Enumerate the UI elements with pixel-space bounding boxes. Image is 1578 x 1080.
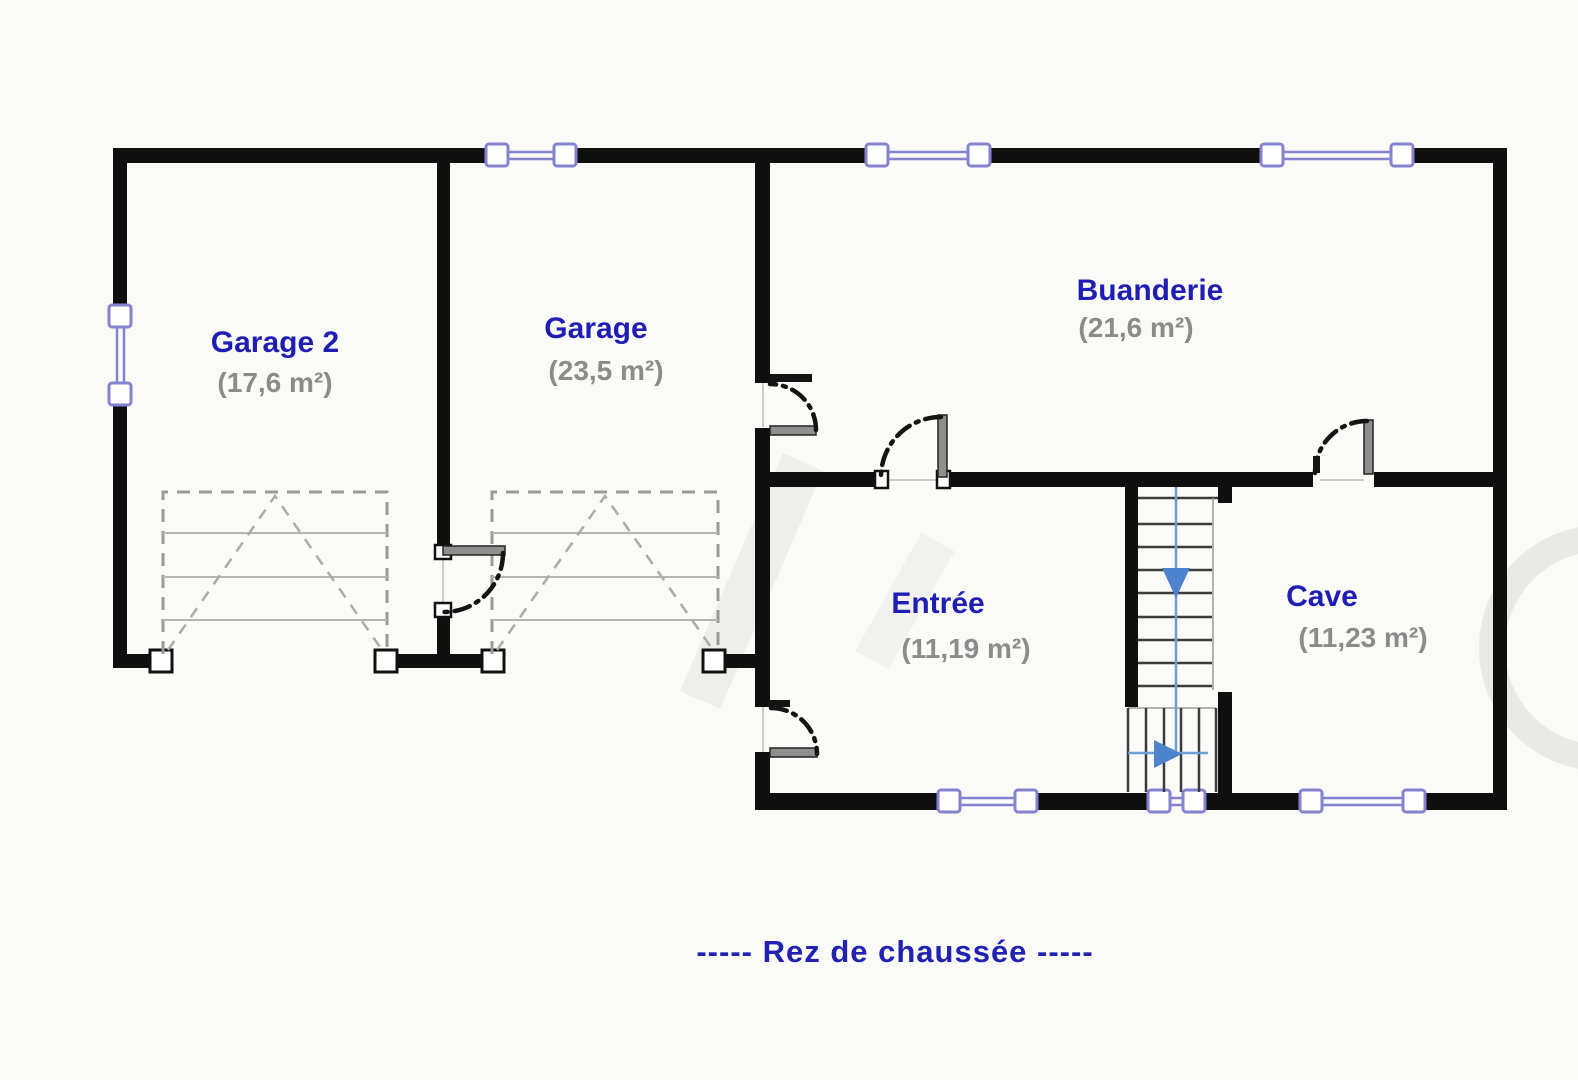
staircase: [1128, 487, 1218, 792]
room-area-buanderie: (21,6 m²): [1078, 312, 1193, 343]
room-label-buanderie: Buanderie: [1077, 274, 1224, 307]
stairs-right-arrow-icon: [1154, 740, 1182, 768]
garage-door-symbol-garage2: [163, 492, 387, 654]
room-area-garage: (23,5 m²): [548, 355, 663, 386]
window-buanderie-top-right: [1261, 144, 1413, 166]
floor-plan-canvas: Garage 2 (17,6 m²) Garage (23,5 m²) Buan…: [0, 0, 1578, 1080]
room-labels: Garage 2 (17,6 m²) Garage (23,5 m²) Buan…: [211, 274, 1428, 664]
window-entree-bottom: [938, 790, 1037, 812]
window-garage2-left: [109, 305, 131, 405]
room-area-garage-2: (17,6 m²): [217, 367, 332, 398]
room-label-entree: Entrée: [891, 587, 984, 620]
garage-door-symbol-garage: [492, 492, 718, 654]
room-label-garage: Garage: [544, 312, 647, 345]
watermark: [700, 462, 1578, 758]
window-cave-bottom: [1300, 790, 1425, 812]
door-buanderie-cave: [1313, 420, 1373, 480]
window-buanderie-top-left: [866, 144, 990, 166]
door-entrance-main: [763, 700, 817, 757]
room-area-entree: (11,19 m²): [901, 633, 1030, 664]
room-label-garage-2: Garage 2: [211, 326, 339, 359]
room-area-cave: (11,23 m²): [1298, 622, 1427, 653]
window-stairs-bottom: [1148, 790, 1205, 812]
door-garage-buanderie: [763, 374, 816, 435]
floor-plan-svg: Garage 2 (17,6 m²) Garage (23,5 m²) Buan…: [0, 0, 1578, 1080]
interior-walls: [437, 163, 1493, 810]
door-garage2-garage: [435, 545, 505, 617]
floor-title: ----- Rez de chaussée -----: [696, 934, 1093, 969]
room-label-cave: Cave: [1286, 580, 1358, 613]
window-garage-top: [486, 144, 576, 166]
door-buanderie-entree: [875, 415, 950, 488]
